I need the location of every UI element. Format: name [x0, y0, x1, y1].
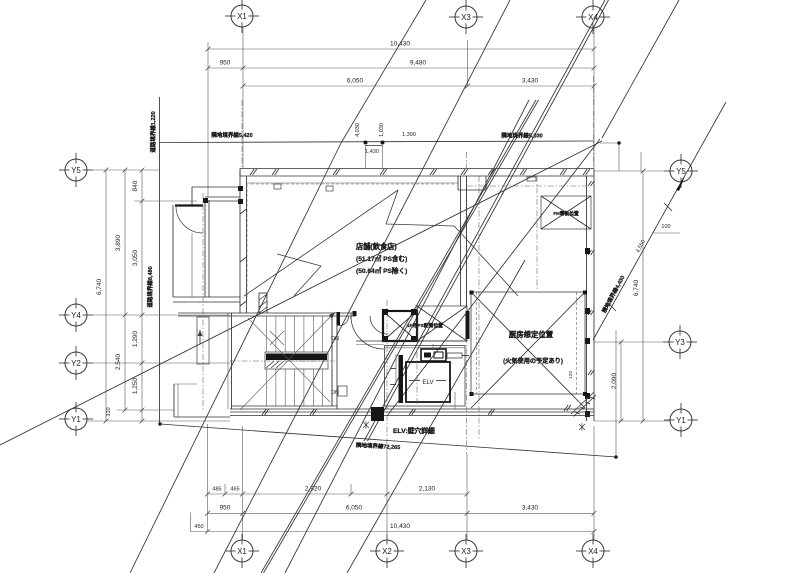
svg-text:1,290: 1,290: [132, 330, 139, 347]
svg-text:X2: X2: [382, 547, 392, 556]
svg-text:(火気使用の予定あり): (火気使用の予定あり): [503, 357, 563, 365]
svg-text:店舗(飲食店): 店舗(飲食店): [355, 242, 397, 251]
svg-text:FH看板位置: FH看板位置: [553, 210, 579, 217]
svg-text:6,740: 6,740: [96, 278, 103, 295]
svg-text:3,890: 3,890: [115, 234, 122, 251]
svg-text:Y2: Y2: [71, 359, 81, 368]
svg-text:485: 485: [212, 487, 221, 493]
svg-text:3,430: 3,430: [522, 505, 539, 512]
svg-text:(50.64㎡ PS除く): (50.64㎡ PS除く): [356, 266, 407, 275]
svg-text:X1: X1: [237, 547, 247, 556]
svg-text:X1: X1: [237, 12, 247, 21]
svg-text:2,540: 2,540: [115, 353, 122, 370]
svg-text:120: 120: [568, 371, 574, 379]
svg-text:6,740: 6,740: [633, 279, 640, 296]
svg-text:DN: DN: [331, 336, 339, 342]
svg-text:X3: X3: [461, 13, 471, 22]
svg-text:2,090: 2,090: [611, 372, 618, 389]
svg-text:2,130: 2,130: [419, 486, 436, 493]
svg-text:Y4: Y4: [71, 311, 81, 320]
svg-text:隣地境界線5,420: 隣地境界線5,420: [211, 131, 252, 139]
svg-text:厨房想定位置: 厨房想定位置: [509, 330, 554, 339]
svg-text:950: 950: [220, 60, 231, 67]
svg-text:2,920: 2,920: [305, 486, 322, 493]
svg-text:1,390: 1,390: [402, 132, 416, 138]
svg-text:3,430: 3,430: [522, 78, 539, 85]
svg-text:ELV:壁穴詳細: ELV:壁穴詳細: [393, 426, 435, 435]
svg-text:9,480: 9,480: [410, 60, 427, 67]
svg-text:Y3: Y3: [675, 338, 685, 347]
svg-text:Y1: Y1: [676, 416, 686, 425]
svg-text:4,030: 4,030: [355, 123, 361, 137]
svg-text:1,430: 1,430: [365, 149, 379, 155]
svg-text:Y5: Y5: [676, 167, 686, 176]
svg-text:1,030: 1,030: [379, 123, 385, 137]
svg-text:840: 840: [132, 180, 139, 191]
svg-text:道路境界線1,220: 道路境界線1,220: [149, 111, 157, 152]
svg-text:3,050: 3,050: [132, 249, 139, 266]
svg-text:道路境界線8,480: 道路境界線8,480: [146, 266, 154, 307]
svg-text:X4: X4: [588, 547, 598, 556]
svg-text:(51.17㎡ PS含む): (51.17㎡ PS含む): [356, 254, 407, 263]
svg-text:6,050: 6,050: [346, 505, 363, 512]
svg-text:Y5: Y5: [71, 166, 81, 175]
svg-text:X3: X3: [461, 547, 471, 556]
svg-text:1F用PS配管位置: 1F用PS配管位置: [407, 322, 443, 329]
svg-text:310: 310: [106, 407, 112, 416]
svg-text:10,430: 10,430: [390, 523, 410, 530]
svg-text:450: 450: [194, 524, 203, 530]
svg-text:100: 100: [661, 224, 670, 230]
svg-text:ELV: ELV: [422, 379, 434, 386]
svg-text:6,050: 6,050: [347, 78, 364, 85]
svg-text:Y1: Y1: [71, 415, 81, 424]
svg-text:465: 465: [230, 487, 239, 493]
svg-text:950: 950: [220, 505, 231, 512]
svg-text:1,250: 1,250: [132, 377, 139, 394]
